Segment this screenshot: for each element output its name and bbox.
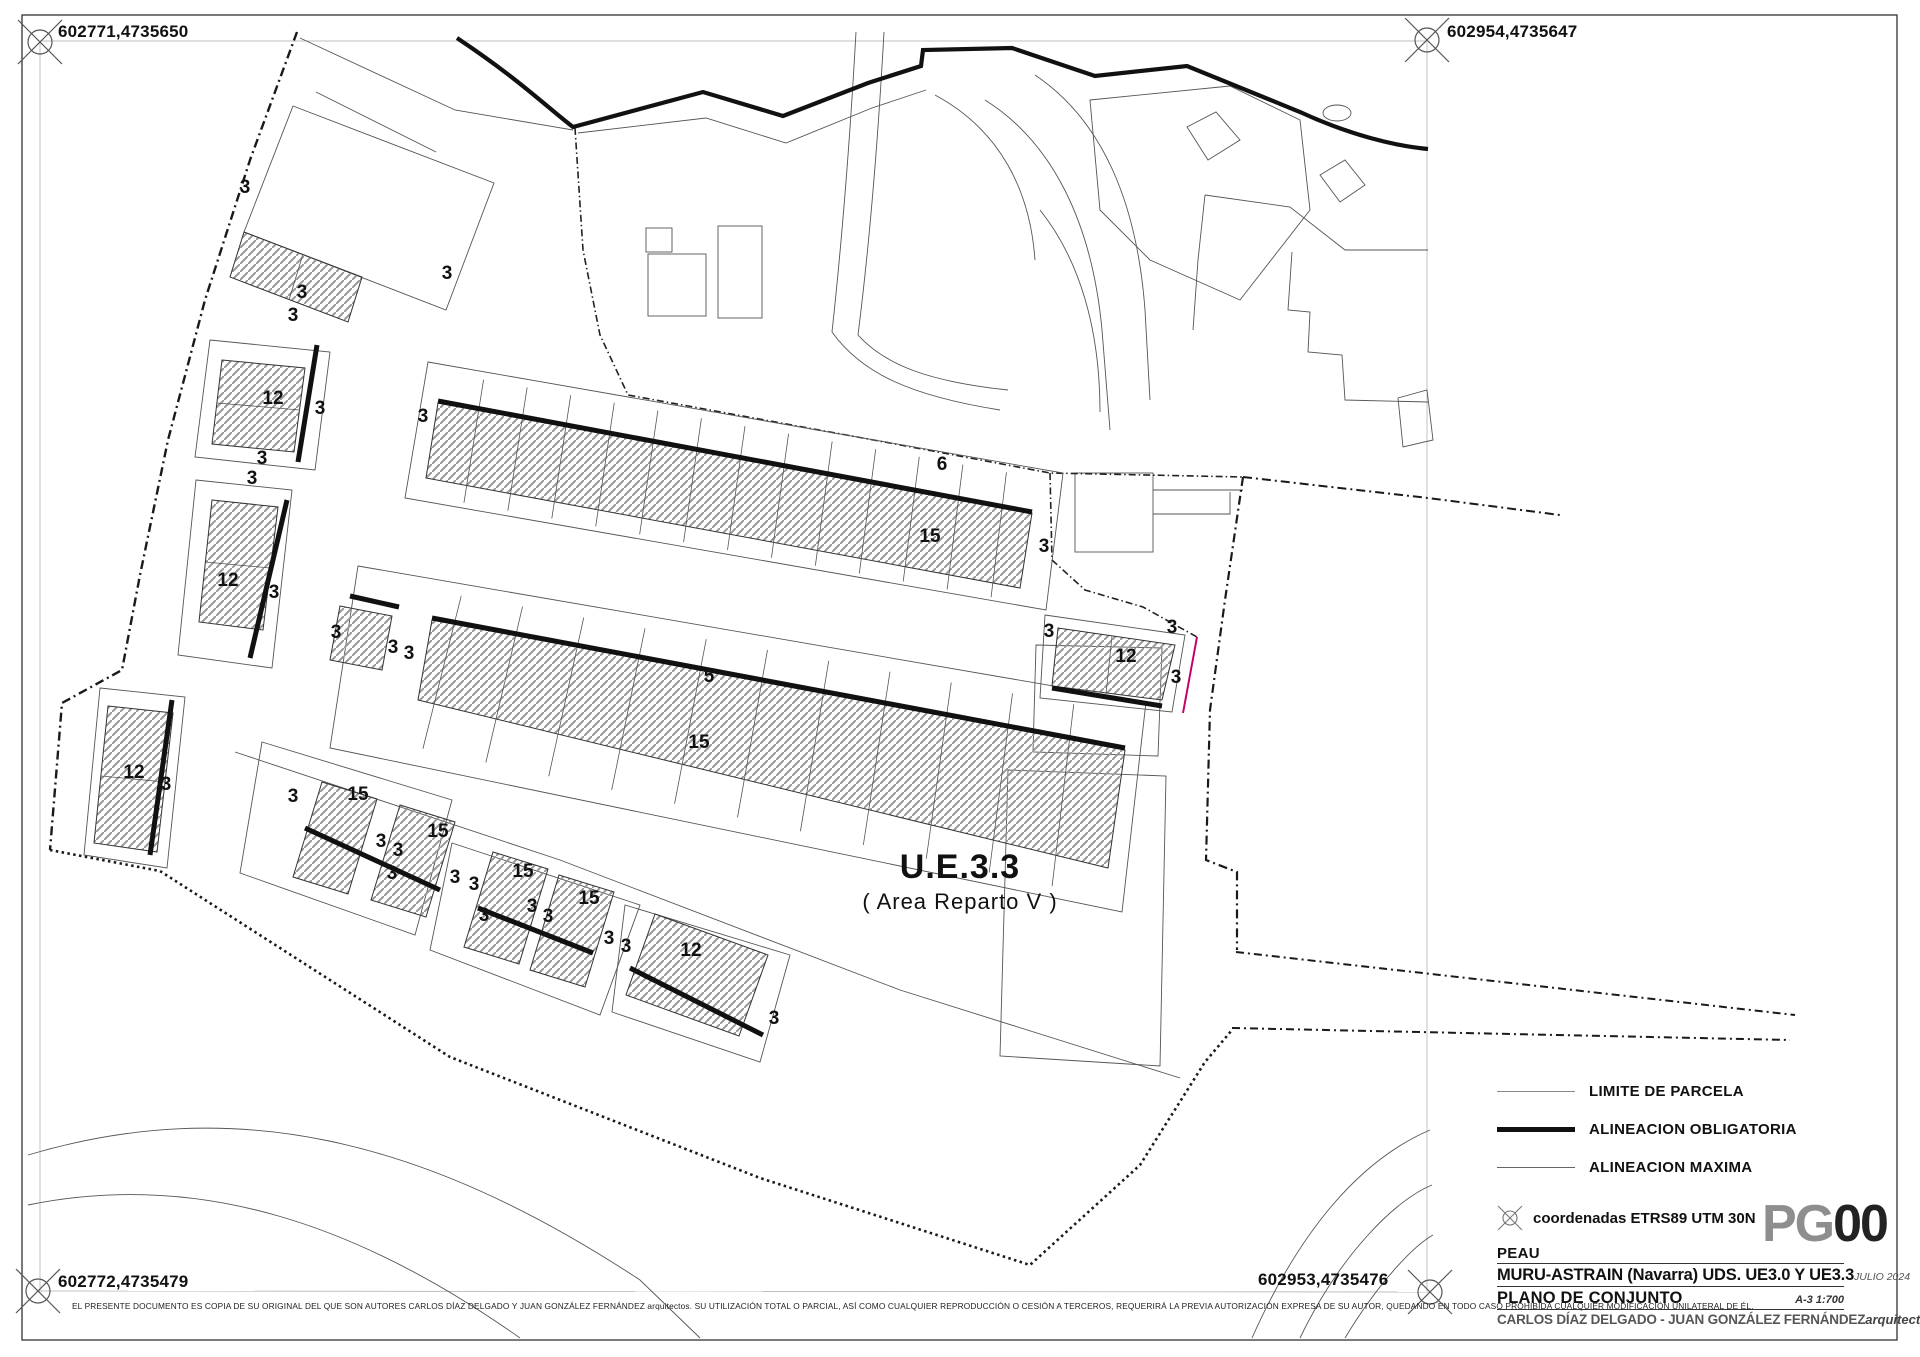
dimension-label: 3	[543, 906, 554, 927]
project-location: MURU-ASTRAIN (Navarra) UDS. UE3.0 Y UE3.…	[1497, 1266, 1854, 1285]
dimension-label: 3	[288, 305, 299, 326]
coordinate-label-top-right: 602954,4735647	[1447, 22, 1577, 42]
dimension-label: 12	[262, 388, 283, 409]
area-label: U.E.3.3 ( Area Reparto V )	[830, 848, 1090, 915]
thin-line-swatch	[1497, 1091, 1575, 1092]
coordinate-label-top-left: 602771,4735650	[58, 22, 188, 42]
dimension-label: 3	[604, 928, 615, 949]
max-alignment-magenta-line	[1183, 637, 1197, 713]
divider	[1497, 1286, 1844, 1287]
dimension-label: 3	[331, 622, 342, 643]
dimension-label: 12	[1115, 646, 1136, 667]
dimension-label: 3	[388, 637, 399, 658]
dimension-label: 3	[247, 468, 258, 489]
copyright-disclaimer: EL PRESENTE DOCUMENTO ES COPIA DE SU ORI…	[72, 1301, 1754, 1311]
dimension-label: 3	[450, 867, 461, 888]
medium-line-swatch	[1497, 1167, 1575, 1168]
plan-sheet: 3333123331231233615333351533123315331533…	[0, 0, 1920, 1357]
dimension-label: 3	[387, 863, 398, 884]
dimension-label: 15	[919, 526, 941, 547]
area-subtitle: ( Area Reparto V )	[830, 889, 1090, 915]
dimension-label: 15	[512, 861, 534, 882]
dimension-label: 3	[161, 774, 172, 795]
coordinate-label-bottom-left: 602772,4735479	[58, 1272, 188, 1292]
dimension-label: 15	[347, 784, 369, 805]
road-alignment-line	[457, 38, 1428, 149]
project-date: JULIO 2024	[1854, 1271, 1910, 1283]
dimension-label: 3	[393, 840, 404, 861]
coordinate-label-bottom-right: 602953,4735476	[1258, 1270, 1388, 1290]
detached-blocks	[240, 742, 790, 1062]
dimension-label: 3	[621, 936, 632, 957]
sheet-code: PG00	[1762, 1198, 1887, 1250]
dimension-label: 3	[269, 582, 280, 603]
dimension-label: 12	[123, 762, 144, 783]
dimension-label: 3	[442, 263, 453, 284]
dimension-label: 3	[769, 1008, 780, 1029]
left-parcels	[84, 106, 494, 868]
dimension-label: 3	[1167, 617, 1178, 638]
dimension-label: 3	[1044, 621, 1055, 642]
dimension-label: 3	[418, 406, 429, 427]
dimension-label: 3	[404, 643, 415, 664]
corner-markers	[16, 18, 1452, 1314]
dimension-label: 3	[376, 831, 387, 852]
dimension-label: 3	[1171, 667, 1182, 688]
dimension-label: 3	[479, 905, 490, 926]
sheet-format-scale: A-3 1:700	[1795, 1294, 1844, 1306]
dimension-label: 3	[527, 896, 538, 917]
dimension-label: 3	[288, 786, 299, 807]
legend-item-limite-parcela: LIMITE DE PARCELA	[1497, 1072, 1897, 1110]
area-title: U.E.3.3	[830, 848, 1090, 887]
coordinates-note: coordenadas ETRS89 UTM 30N	[1497, 1205, 1756, 1231]
legend-item-alineacion-maxima: ALINEACION MAXIMA	[1497, 1148, 1897, 1186]
dimension-label: 3	[297, 282, 308, 303]
dimension-label: 5	[704, 666, 715, 687]
dimension-label: 3	[1039, 536, 1050, 557]
profession: arquitectos	[1865, 1312, 1920, 1327]
reference-lines	[38, 41, 1430, 1292]
dimension-label: 3	[257, 448, 268, 469]
thick-line-swatch	[1497, 1127, 1575, 1132]
dimension-label: 15	[688, 732, 710, 753]
dimension-label: 15	[578, 888, 600, 909]
dimension-label: 12	[680, 940, 701, 961]
dimension-label: 15	[427, 821, 449, 842]
dimension-label: 3	[240, 177, 251, 198]
title-block: PEAU MURU-ASTRAIN (Navarra) UDS. UE3.0 Y…	[1497, 1245, 1844, 1327]
divider	[1497, 1263, 1844, 1264]
authors: CARLOS DÍAZ DELGADO - JUAN GONZÁLEZ FERN…	[1497, 1312, 1865, 1327]
terrace-band-upper	[405, 362, 1063, 610]
project-type: PEAU	[1497, 1245, 1540, 1262]
dimension-label: 6	[937, 454, 948, 475]
dimension-label: 3	[315, 398, 326, 419]
dimension-label: 3	[469, 874, 480, 895]
dimension-label: 12	[217, 570, 238, 591]
legend-item-alineacion-obligatoria: ALINEACION OBLIGATORIA	[1497, 1110, 1897, 1148]
legend: LIMITE DE PARCELA ALINEACION OBLIGATORIA…	[1497, 1072, 1897, 1186]
crosshair-icon	[1497, 1205, 1523, 1231]
